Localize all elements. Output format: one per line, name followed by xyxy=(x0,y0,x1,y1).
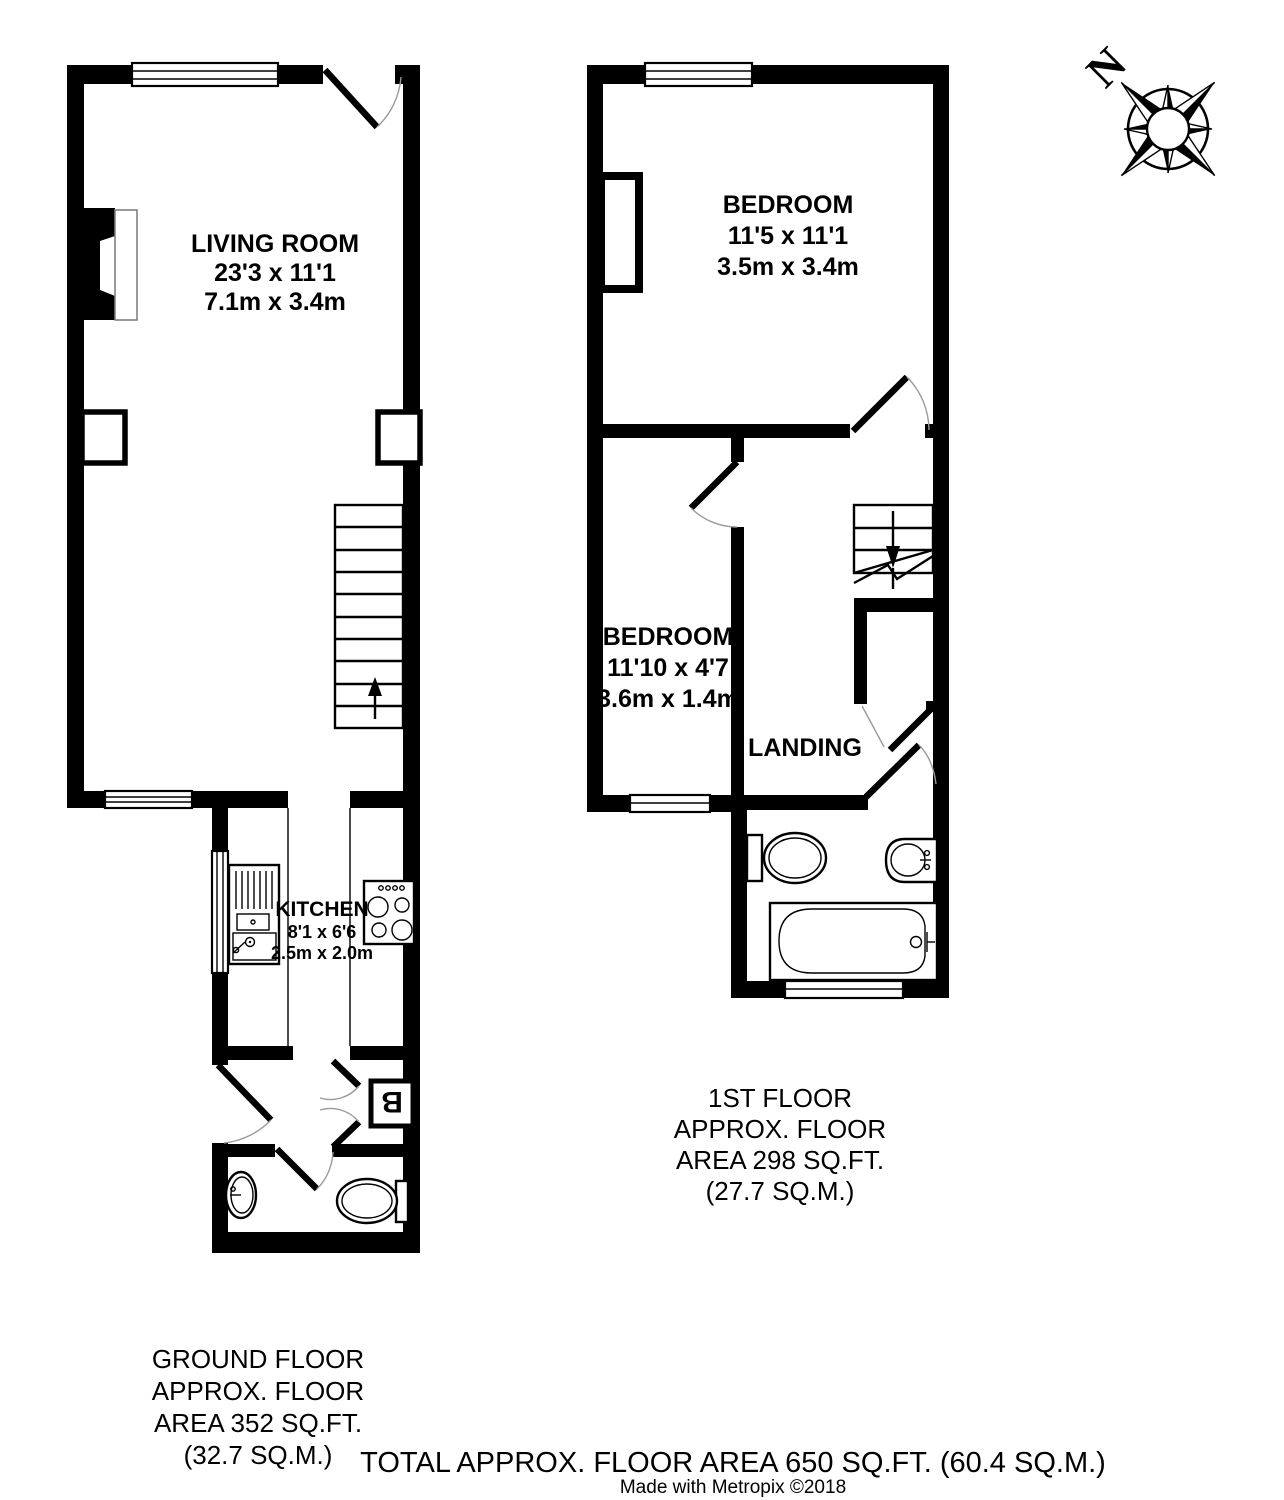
alcove-left xyxy=(82,412,125,463)
ground-caption-line1: GROUND FLOOR xyxy=(152,1344,364,1374)
kitchen-window xyxy=(212,851,228,973)
living-room-dims-imperial: 23'3 x 11'1 xyxy=(214,259,336,287)
bedroom1-dims-metric: 3.5m x 3.4m xyxy=(717,253,859,281)
kitchen-label: KITCHEN 8'1 x 6'6 2.5m x 2.0m xyxy=(271,898,373,963)
first-caption-line1: 1ST FLOOR xyxy=(708,1083,852,1113)
bedroom2-name: BEDROOM xyxy=(603,623,734,651)
first-caption-line4: (27.7 SQ.M.) xyxy=(706,1176,855,1206)
ground-caption-line4: (32.7 SQ.M.) xyxy=(184,1440,333,1470)
bedroom1-label: BEDROOM 11'5 x 11'1 3.5m x 3.4m xyxy=(717,191,859,281)
floor-plan-page: B xyxy=(0,0,1284,1500)
first-floor-plan: BEDROOM 11'5 x 11'1 3.5m x 3.4m BEDROOM … xyxy=(587,63,949,998)
kitchen-dims-metric: 2.5m x 2.0m xyxy=(271,943,373,963)
living-room-window-top xyxy=(132,63,278,86)
kitchen-name: KITCHEN xyxy=(275,898,368,921)
front-door xyxy=(212,1065,271,1143)
wc-door xyxy=(277,1149,333,1189)
kitchen-hob xyxy=(364,881,414,944)
ground-caption-line3: AREA 352 SQ.FT. xyxy=(154,1408,362,1438)
bedroom2-door xyxy=(691,462,737,527)
landing-label: LANDING xyxy=(748,734,862,762)
staircase-up xyxy=(335,505,403,728)
bedroom1-door xyxy=(853,377,929,431)
alcove-right xyxy=(378,412,420,463)
bedroom1-name: BEDROOM xyxy=(723,191,854,219)
bedroom1-window xyxy=(645,63,752,86)
bathroom-window xyxy=(785,981,903,998)
bedroom2-dims-imperial: 11'10 x 4'7 xyxy=(607,654,729,682)
footer: TOTAL APPROX. FLOOR AREA 650 SQ.FT. (60.… xyxy=(360,1447,1106,1498)
total-area-text: TOTAL APPROX. FLOOR AREA 650 SQ.FT. (60.… xyxy=(360,1447,1106,1479)
floor-plan-canvas: B xyxy=(0,0,1284,1500)
living-room-entry-door xyxy=(323,63,401,127)
boiler-label: B xyxy=(381,1085,403,1118)
wc-toilet xyxy=(337,1179,408,1223)
bathroom-toilet xyxy=(747,833,826,883)
bathroom-sink xyxy=(886,839,937,882)
first-caption-line2: APPROX. FLOOR xyxy=(674,1114,886,1144)
bedroom1-alcove xyxy=(601,176,639,289)
bathroom-door xyxy=(866,745,936,797)
living-room-label: LIVING ROOM 23'3 x 11'1 7.1m x 3.4m xyxy=(191,230,359,316)
boiler-cupboard: B xyxy=(320,1061,413,1147)
first-floor-caption: 1ST FLOOR APPROX. FLOOR AREA 298 SQ.FT. … xyxy=(674,1083,886,1206)
living-room-window-bottom xyxy=(105,791,192,808)
living-room-dims-metric: 7.1m x 3.4m xyxy=(204,288,346,316)
cupboard-door xyxy=(862,706,933,750)
living-room-name: LIVING ROOM xyxy=(191,230,359,258)
compass-rose: N xyxy=(1041,2,1261,222)
kitchen-dims-imperial: 8'1 x 6'6 xyxy=(288,922,357,942)
bathtub xyxy=(770,903,937,980)
ground-floor-caption: GROUND FLOOR APPROX. FLOOR AREA 352 SQ.F… xyxy=(152,1344,364,1470)
bedroom2-label: BEDROOM 11'10 x 4'7 3.6m x 1.4m xyxy=(597,623,739,713)
bedroom2-window xyxy=(630,795,710,812)
first-caption-line3: AREA 298 SQ.FT. xyxy=(676,1145,884,1175)
ground-caption-line2: APPROX. FLOOR xyxy=(152,1376,364,1406)
ground-floor-plan: B xyxy=(67,63,420,1253)
bedroom1-dims-imperial: 11'5 x 11'1 xyxy=(728,222,848,250)
wc-sink xyxy=(226,1172,256,1218)
credit-text: Made with Metropix ©2018 xyxy=(620,1477,846,1498)
bedroom2-dims-metric: 3.6m x 1.4m xyxy=(597,685,739,713)
fireplace xyxy=(84,208,137,320)
staircase-down xyxy=(854,505,933,589)
